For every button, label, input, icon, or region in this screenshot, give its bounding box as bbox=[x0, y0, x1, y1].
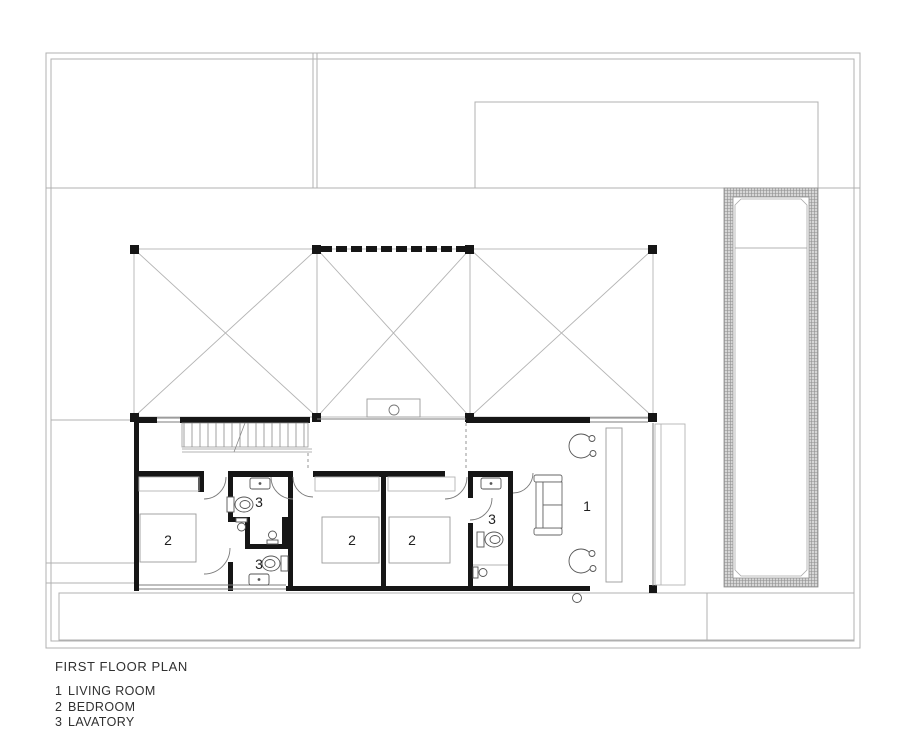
armchair-top bbox=[569, 434, 598, 458]
legend-items: 1LIVING ROOM 2BEDROOM 3LAVATORY bbox=[55, 684, 188, 731]
legend-label-lavatory: LAVATORY bbox=[68, 715, 135, 729]
basin-east bbox=[479, 569, 487, 577]
panel-3-x-brace bbox=[470, 249, 653, 417]
room-label-lavatory-lower: 3 bbox=[255, 556, 263, 572]
plan-title: FIRST FLOOR PLAN bbox=[55, 659, 188, 674]
legend-number-1: 1 bbox=[55, 684, 68, 700]
closet-middle bbox=[315, 477, 379, 491]
closet-right bbox=[388, 477, 455, 491]
basin-1 bbox=[236, 518, 247, 522]
legend-item-lavatory: 3LAVATORY bbox=[55, 715, 188, 731]
door-bath-lower bbox=[204, 548, 230, 574]
stair-rail-lines bbox=[182, 449, 312, 452]
site-inner-border bbox=[51, 59, 854, 641]
door-living-room bbox=[513, 473, 533, 493]
west-wall bbox=[134, 417, 139, 591]
toilet-tank-upper bbox=[227, 497, 234, 512]
sofa-arm-top bbox=[534, 475, 562, 482]
skylight-circle bbox=[389, 405, 399, 415]
floor-plan-drawing: 2 2 2 3 3 3 1 bbox=[0, 0, 912, 743]
sofa-arm-bottom bbox=[534, 528, 562, 535]
bottom-path-band bbox=[59, 593, 854, 640]
bath-fixtures bbox=[227, 478, 508, 585]
sofa-seat-2 bbox=[543, 505, 562, 528]
armchair-bottom bbox=[569, 549, 598, 573]
swimming-pool bbox=[724, 188, 818, 587]
sofa-back bbox=[536, 482, 543, 528]
left-connector-lines bbox=[46, 420, 134, 583]
panel-1-x-brace bbox=[134, 249, 317, 417]
legend-label-living-room: LIVING ROOM bbox=[68, 684, 156, 698]
upper-terrace-outline bbox=[475, 102, 818, 188]
room-label-lavatory-east: 3 bbox=[488, 511, 496, 527]
room-label-bedroom-middle: 2 bbox=[348, 532, 356, 548]
stairwell-wall bbox=[180, 417, 310, 423]
stairs bbox=[182, 423, 466, 470]
door-bedroom-middle bbox=[293, 477, 313, 497]
basin-2 bbox=[267, 540, 278, 544]
ceiling-panels bbox=[130, 245, 657, 422]
pool-water-edge bbox=[735, 199, 807, 576]
toilet-tank-east bbox=[477, 532, 484, 547]
sofa-seat-1 bbox=[543, 482, 562, 505]
stair-break-line bbox=[234, 423, 245, 452]
panel-2-x-brace bbox=[317, 249, 470, 417]
legend-item-bedroom: 2BEDROOM bbox=[55, 700, 188, 716]
legend-number-3: 3 bbox=[55, 715, 68, 731]
legend-label-bedroom: BEDROOM bbox=[68, 700, 135, 714]
console-shelf bbox=[606, 428, 622, 582]
bed-right bbox=[389, 517, 450, 563]
overhead-dashed-lines bbox=[308, 423, 466, 470]
south-bedroom-window bbox=[139, 585, 286, 589]
column-marker-circle bbox=[573, 594, 582, 603]
drawing-legend: FIRST FLOOR PLAN 1LIVING ROOM 2BEDROOM 3… bbox=[55, 659, 188, 731]
bedroom-furniture bbox=[139, 477, 455, 563]
floor-plan-page: 2 2 2 3 3 3 1 FIRST FLOOR PLAN 1LIVING R… bbox=[0, 0, 912, 743]
door-bedroom-right bbox=[445, 477, 467, 499]
north-window-west bbox=[157, 418, 180, 422]
closet-left bbox=[139, 477, 199, 491]
room-label-lavatory-upper: 3 bbox=[255, 494, 263, 510]
room-label-living-room: 1 bbox=[583, 498, 591, 514]
room-label-bedroom-right: 2 bbox=[408, 532, 416, 548]
basin-east-bracket bbox=[473, 567, 478, 578]
toilet-tank-lower bbox=[281, 556, 288, 571]
legend-number-2: 2 bbox=[55, 700, 68, 716]
top-band-divider bbox=[313, 53, 317, 188]
door-bedroom-left bbox=[204, 477, 226, 499]
legend-item-living-room: 1LIVING ROOM bbox=[55, 684, 188, 700]
east-terrace-deck bbox=[655, 424, 685, 585]
living-room-furniture bbox=[534, 424, 685, 603]
living-room-north-window bbox=[590, 418, 648, 422]
south-wall bbox=[286, 586, 590, 591]
room-label-bedroom-left: 2 bbox=[164, 532, 172, 548]
